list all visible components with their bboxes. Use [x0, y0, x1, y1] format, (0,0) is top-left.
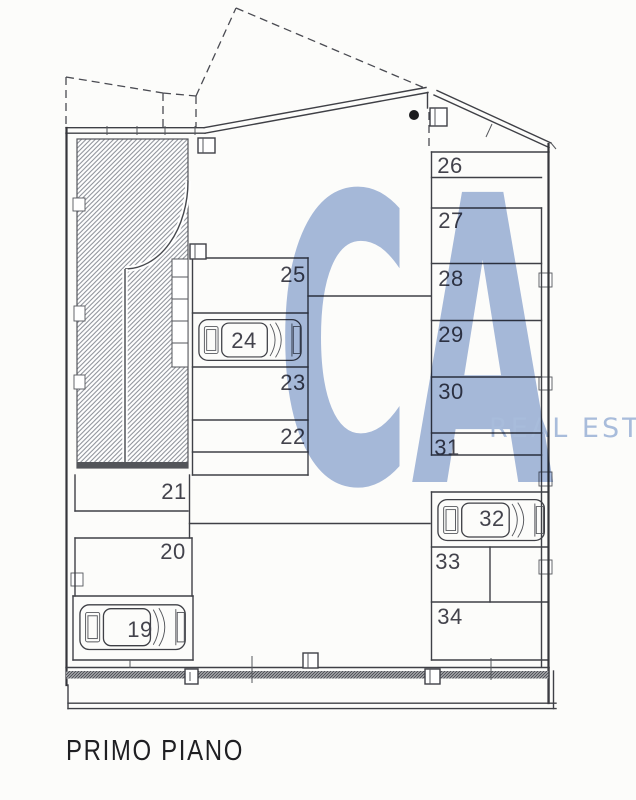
roofline — [204, 88, 556, 150]
space-label-19: 19 — [127, 617, 152, 642]
roof-peak-dot — [409, 110, 419, 120]
ramp-hatch — [77, 139, 188, 468]
space-label-32: 32 — [479, 506, 504, 531]
pillar-icon — [185, 669, 198, 684]
pillar-icon — [303, 653, 318, 668]
space-label-25: 25 — [280, 262, 305, 287]
floor-plan-drawing: 19 20 21 22 23 24 25 26 27 28 29 30 31 3… — [0, 0, 636, 800]
space-label-27: 27 — [438, 208, 463, 233]
space-label-31: 31 — [434, 435, 459, 460]
floor-plan-page: 19 20 21 22 23 24 25 26 27 28 29 30 31 3… — [0, 0, 636, 800]
pillar-icon — [190, 244, 206, 259]
central-parking-block — [193, 258, 432, 475]
space-label-21: 21 — [161, 479, 186, 504]
space-label-29: 29 — [438, 322, 463, 347]
space-label-26: 26 — [437, 153, 462, 178]
space-label-22: 22 — [280, 424, 305, 449]
roof-dashed-outline — [66, 8, 429, 151]
space-label-28: 28 — [438, 266, 463, 291]
space-label-23: 23 — [280, 370, 305, 395]
space-label-34: 34 — [437, 604, 462, 629]
space-label-20: 20 — [160, 539, 185, 564]
staircase — [172, 259, 188, 367]
ramp-bottom-edge — [77, 462, 188, 468]
space-label-24: 24 — [231, 328, 256, 353]
top-wall — [66, 126, 205, 135]
space-label-33: 33 — [435, 549, 460, 574]
pillars — [185, 108, 447, 684]
pillar-icon — [430, 108, 447, 126]
space-label-30: 30 — [438, 379, 463, 404]
page-title: PRIMO PIANO — [66, 735, 244, 767]
pillar-icon — [198, 138, 215, 153]
pillar-icon — [425, 669, 440, 684]
